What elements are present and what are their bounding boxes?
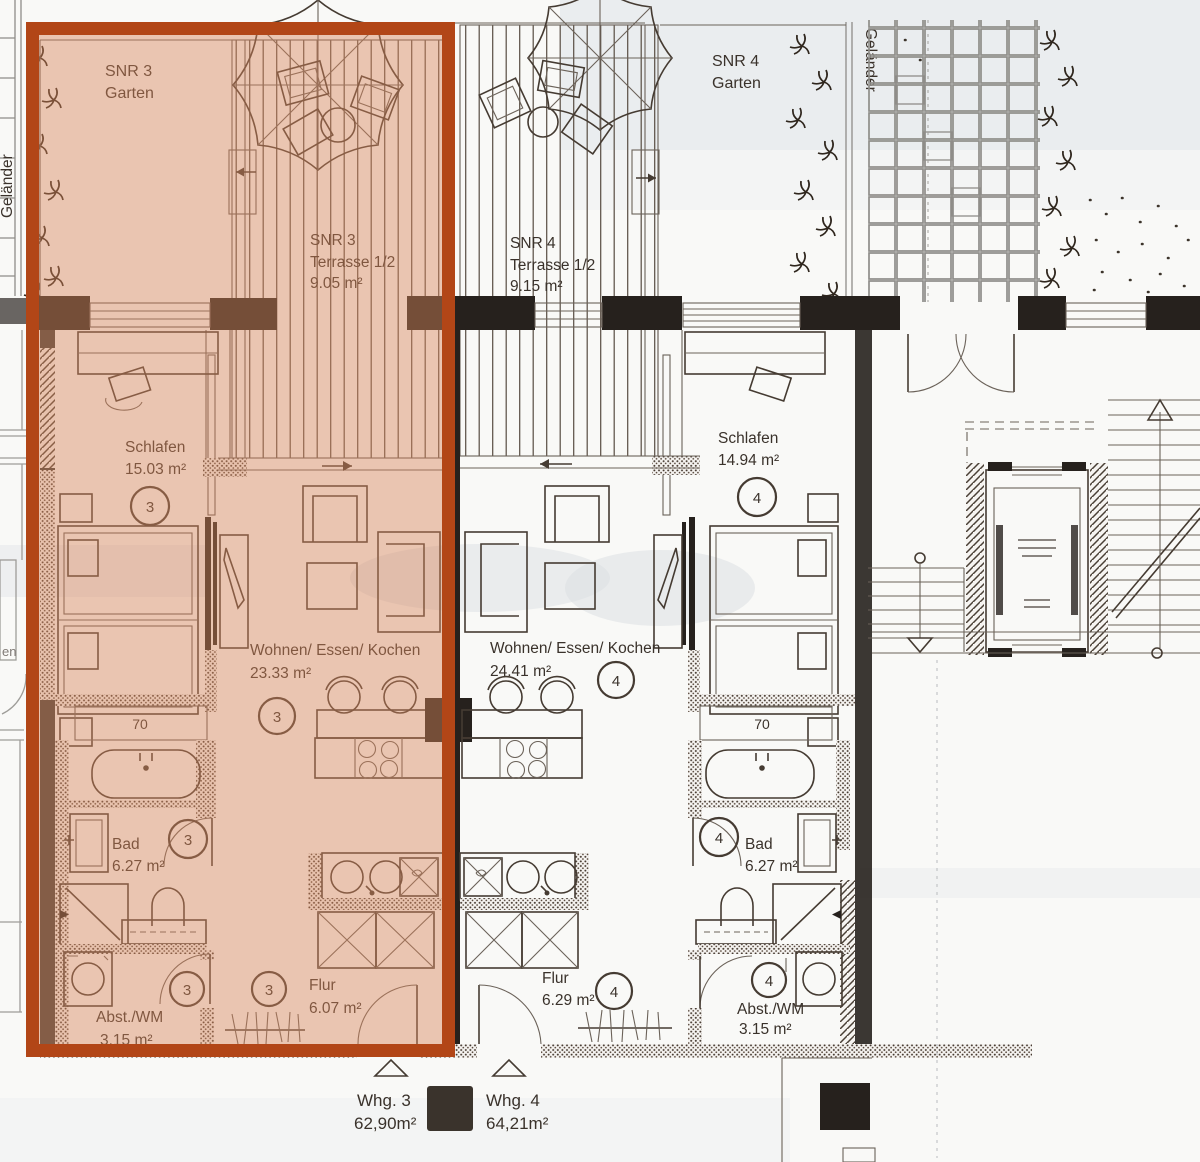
room-label: Flur [542,970,569,987]
svg-text:4: 4 [715,830,723,847]
closet-label: 70 [754,716,770,732]
railing-left-label: Geländer [0,154,16,218]
garden-4-title: SNR 4 [712,53,759,70]
svg-text:4: 4 [612,673,620,690]
legend-whg3-label: Whg. 3 [357,1091,411,1110]
terrace-4-area: 9.15 m² [510,278,563,295]
trellis-icon [868,20,1040,302]
garden-4-subtitle: Garten [712,75,761,92]
floor-plan-page: Geländer Geländer [0,0,1200,1162]
room-area: 3.15 m² [739,1021,792,1038]
svg-text:4: 4 [765,973,773,990]
terrace-4-subtitle: Terrasse 1/2 [510,257,595,274]
room-label: Bad [745,836,773,853]
legend-whg4-area: 64,21m² [486,1114,549,1133]
floor-plan-scan: Geländer Geländer [0,0,1200,1162]
room-label: Schlafen [718,430,778,447]
svg-text:4: 4 [610,984,618,1001]
legend-whg3-area: 62,90m² [354,1114,417,1133]
legend-swatch [427,1086,473,1131]
room-area: 6.29 m² [542,992,595,1009]
room-label: Wohnen/ Essen/ Kochen [490,640,660,657]
neighbor-label-fragment: en [2,644,16,659]
room-area: 14.94 m² [718,452,779,469]
room-label: Abst./WM [737,1001,804,1018]
legend-whg4-label: Whg. 4 [486,1091,540,1110]
room-area: 6.27 m² [745,858,798,875]
svg-text:4: 4 [753,490,761,507]
apartment-3-highlight[interactable] [26,22,455,1057]
terrace-4-title: SNR 4 [510,235,556,252]
